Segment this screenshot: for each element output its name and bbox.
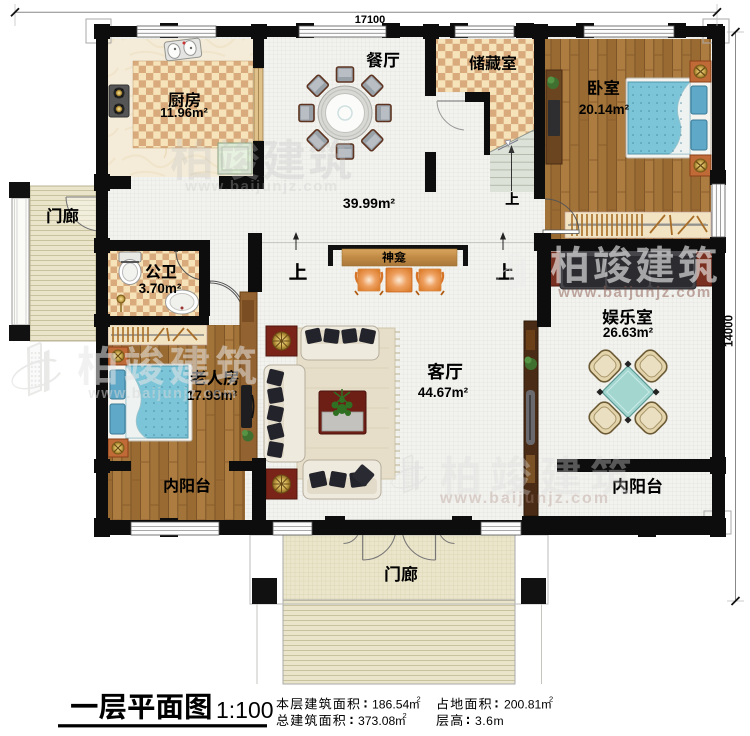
svg-text:2: 2 (403, 711, 407, 720)
svg-text:17100: 17100 (355, 14, 386, 26)
svg-text:www.baijunjz.com: www.baijunjz.com (184, 178, 338, 195)
svg-text:26.63m²: 26.63m² (603, 325, 654, 340)
svg-text:www.baijunjz.com: www.baijunjz.com (557, 284, 711, 301)
svg-text:11.96m²: 11.96m² (160, 105, 208, 120)
svg-text:2: 2 (549, 695, 553, 704)
svg-text:1:100: 1:100 (216, 697, 274, 723)
svg-text:www.baijunjz.com: www.baijunjz.com (439, 490, 610, 507)
svg-text:20.14m²: 20.14m² (579, 102, 630, 117)
svg-text:39.99m²: 39.99m² (343, 195, 395, 211)
svg-text:14000: 14000 (724, 315, 736, 347)
svg-text:3.6m: 3.6m (475, 714, 504, 728)
svg-text:186.54m: 186.54m (372, 698, 419, 712)
svg-text:373.08m: 373.08m (358, 714, 405, 728)
svg-text:www.baijunjz.com: www.baijunjz.com (87, 386, 237, 402)
svg-text:3.70m²: 3.70m² (139, 281, 182, 296)
svg-text:2: 2 (417, 695, 421, 704)
svg-text:44.67m²: 44.67m² (418, 385, 469, 400)
svg-text:200.81m: 200.81m (504, 698, 551, 712)
